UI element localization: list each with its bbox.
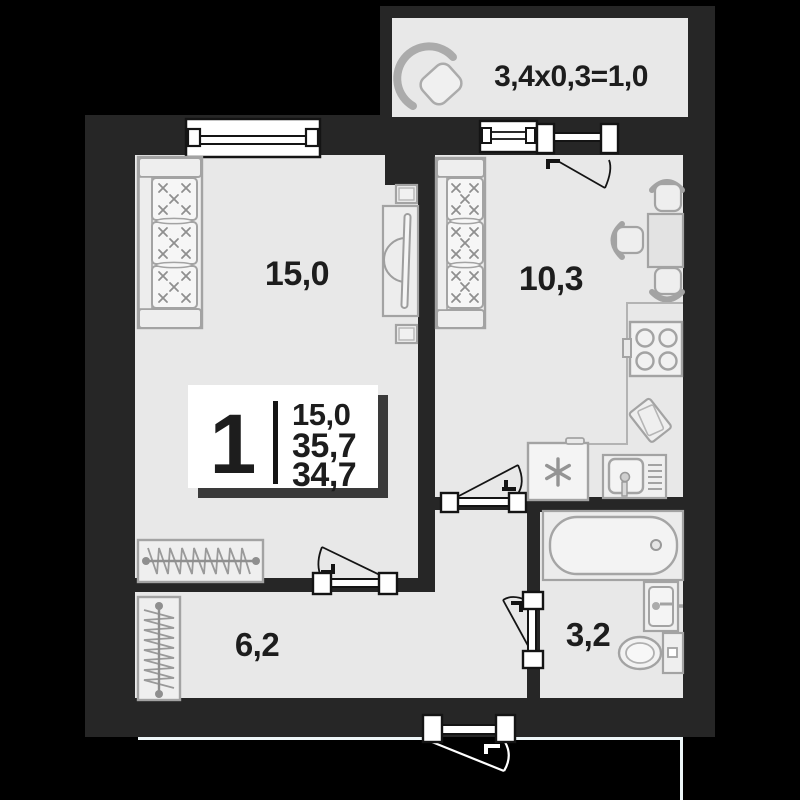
floor-plan-page: 3,4x0,3=1,0 15,0 10,3 6,2 3,2 1 15,0 35,… bbox=[0, 0, 800, 800]
room-count: 1 bbox=[210, 397, 257, 491]
stove-icon bbox=[623, 322, 682, 376]
living-room-area-label: 15,0 bbox=[265, 255, 329, 293]
faucet-icon bbox=[622, 482, 627, 496]
info-divider bbox=[273, 401, 278, 484]
living-room-window bbox=[186, 119, 320, 157]
balcony-area-label: 3,4x0,3=1,0 bbox=[494, 60, 648, 93]
apartment-info-box: 1 15,0 35,7 34,7 bbox=[188, 385, 388, 498]
floor-plan: 3,4x0,3=1,0 15,0 10,3 6,2 3,2 1 15,0 35,… bbox=[0, 0, 800, 800]
bathroom-area-label: 3,2 bbox=[566, 616, 611, 653]
sofa-icon bbox=[138, 157, 202, 328]
wardrobe-icon bbox=[138, 597, 180, 700]
door-handle bbox=[321, 570, 335, 574]
balcony-window bbox=[480, 121, 537, 152]
toilet-icon bbox=[619, 633, 683, 673]
door-handle bbox=[502, 487, 516, 491]
washbasin-icon bbox=[644, 582, 683, 631]
door-handle bbox=[519, 601, 523, 612]
fridge-icon bbox=[528, 438, 588, 500]
door-handle bbox=[546, 159, 560, 163]
wardrobe-icon bbox=[138, 540, 263, 582]
info-area-3: 34,7 bbox=[292, 456, 356, 494]
dining-table-icon bbox=[648, 214, 683, 267]
wall-stub bbox=[385, 155, 435, 185]
door-handle bbox=[484, 744, 500, 748]
kitchen-sink-icon bbox=[603, 455, 666, 498]
kitchen-sofa-icon bbox=[436, 158, 485, 328]
kitchen-area-label: 10,3 bbox=[519, 260, 583, 298]
bathtub-icon bbox=[543, 511, 683, 580]
hallway-area-label: 6,2 bbox=[235, 626, 280, 663]
